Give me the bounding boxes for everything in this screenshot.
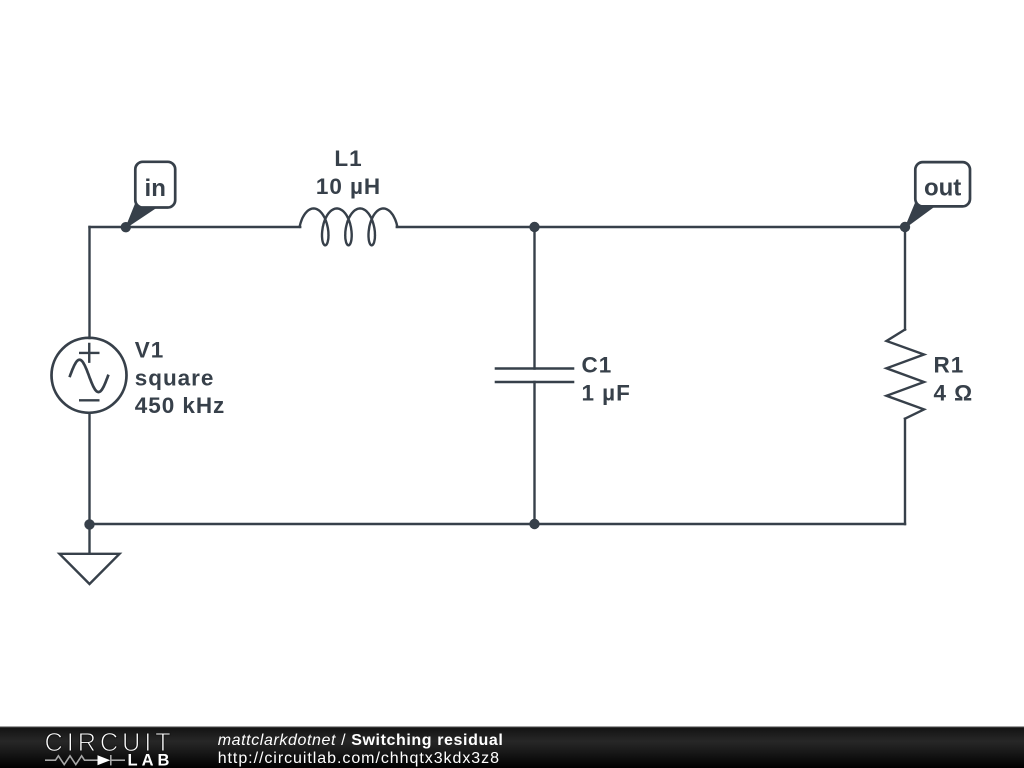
svg-text:450 kHz: 450 kHz: [135, 393, 225, 418]
svg-text:L1: L1: [334, 146, 362, 171]
svg-text:in: in: [145, 175, 166, 202]
svg-text:R1: R1: [934, 353, 965, 378]
svg-text:1 µF: 1 µF: [582, 381, 631, 406]
svg-text:C1: C1: [582, 353, 613, 378]
svg-text:square: square: [135, 366, 214, 391]
svg-text:V1: V1: [135, 338, 164, 363]
svg-text:4 Ω: 4 Ω: [934, 381, 974, 406]
svg-text:http://circuitlab.com/chhqtx3k: http://circuitlab.com/chhqtx3kdx3z8: [218, 750, 500, 767]
svg-text:LAB: LAB: [128, 752, 174, 768]
svg-text:out: out: [924, 175, 961, 202]
svg-text:10 µH: 10 µH: [316, 174, 381, 199]
svg-text:mattclarkdotnet / Switching re: mattclarkdotnet / Switching residual: [218, 732, 504, 749]
